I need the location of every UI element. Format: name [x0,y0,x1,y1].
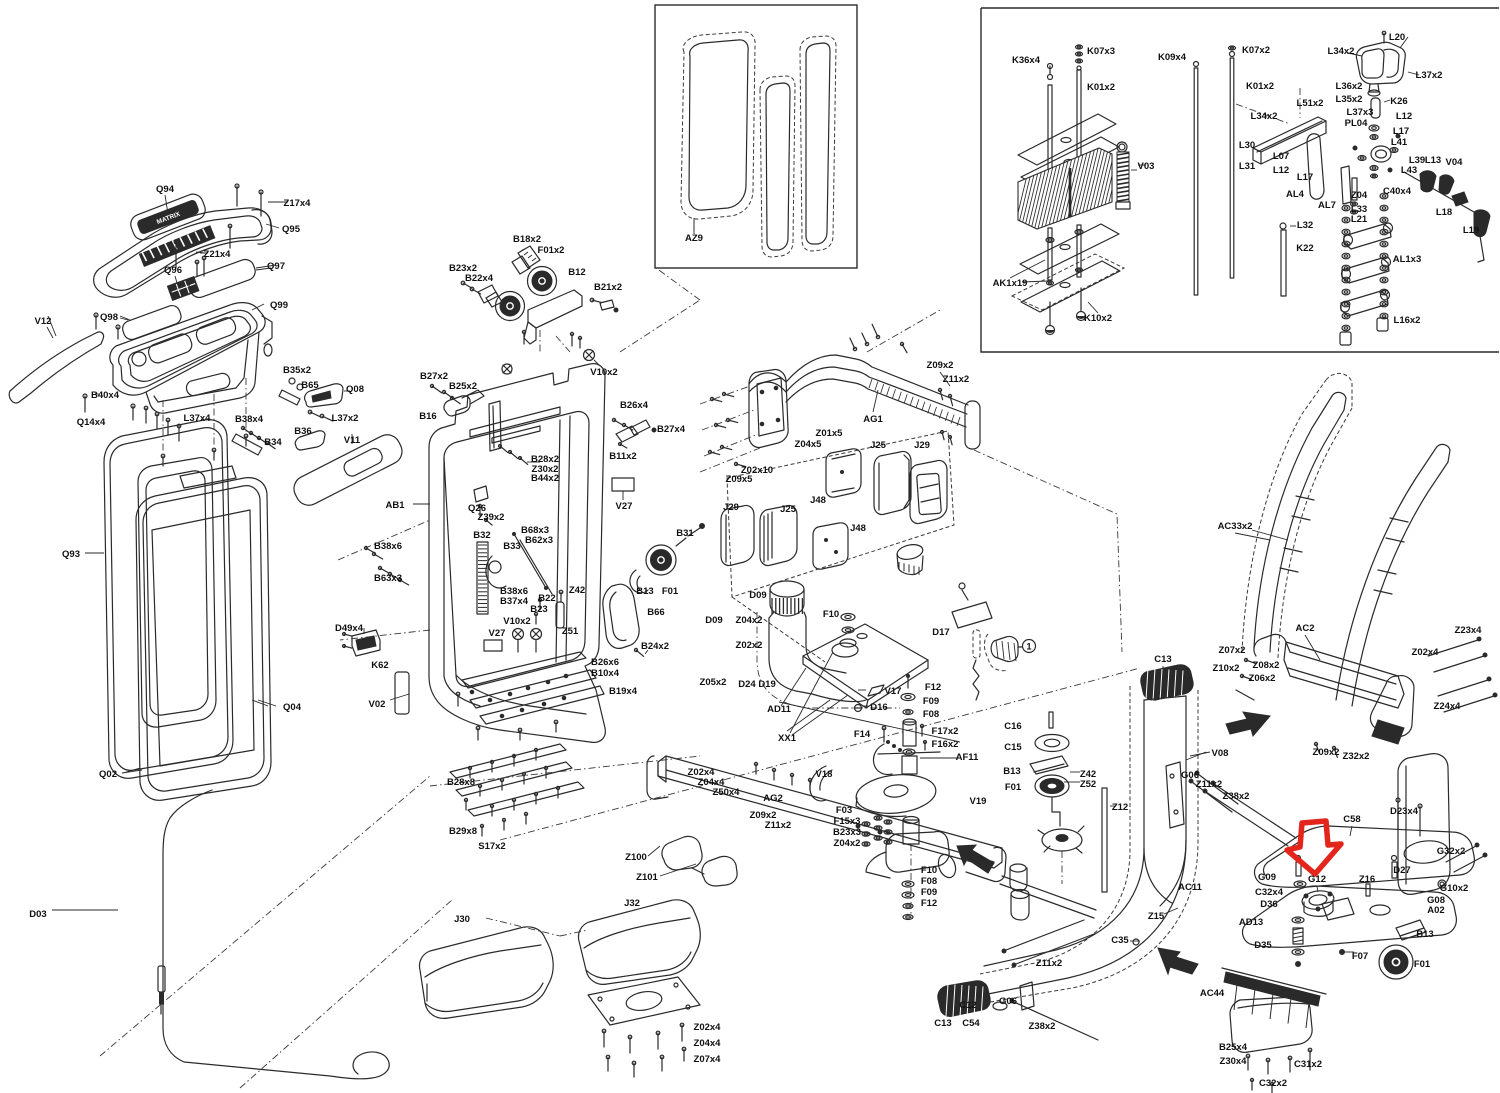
svg-text:C16: C16 [1004,721,1021,732]
svg-text:Z04: Z04 [1351,190,1368,201]
svg-text:Z11x2: Z11x2 [1196,779,1222,790]
svg-text:C54: C54 [962,1018,980,1029]
svg-text:B19x4: B19x4 [609,686,638,697]
svg-text:F07: F07 [1352,951,1368,962]
svg-text:F01: F01 [1414,959,1431,970]
svg-text:D35: D35 [1254,940,1272,951]
svg-text:L43: L43 [1401,165,1417,176]
svg-text:F12: F12 [921,898,937,909]
svg-text:D17: D17 [932,627,949,638]
svg-text:K07x2: K07x2 [1242,45,1270,56]
svg-text:XX1: XX1 [778,733,797,744]
svg-text:L17: L17 [1297,172,1313,183]
svg-text:K09x4: K09x4 [1158,52,1187,63]
svg-text:Z09x2: Z09x2 [927,360,954,371]
svg-text:Z02x4: Z02x4 [694,1022,722,1033]
svg-text:B12: B12 [568,267,585,278]
svg-text:Z17x4: Z17x4 [284,198,312,209]
svg-text:J48: J48 [850,523,866,534]
svg-text:Z38x2: Z38x2 [1223,791,1250,802]
svg-text:Z23x4: Z23x4 [1455,625,1483,636]
svg-text:B13: B13 [1003,766,1020,777]
svg-text:V10x2: V10x2 [503,616,530,627]
svg-text:B34: B34 [264,437,282,448]
svg-text:L12: L12 [1396,111,1412,122]
svg-text:L36x2: L36x2 [1336,81,1363,92]
svg-text:AD13: AD13 [1239,917,1263,928]
svg-text:L13: L13 [1425,155,1441,166]
svg-text:B38x4: B38x4 [235,414,264,425]
svg-text:Z11x2: Z11x2 [1036,958,1062,969]
svg-text:F09: F09 [921,887,937,898]
svg-text:F01x2: F01x2 [538,245,565,256]
svg-text:Z16: Z16 [1359,874,1375,885]
svg-text:C40x4: C40x4 [1383,186,1412,197]
svg-text:J25: J25 [780,504,797,515]
svg-text:Q94: Q94 [156,184,175,195]
svg-text:PL04: PL04 [1345,118,1368,129]
svg-text:A02: A02 [1427,905,1444,916]
svg-text:D09: D09 [705,615,722,626]
svg-text:D03: D03 [29,909,46,920]
svg-text:D27: D27 [1393,865,1410,876]
svg-text:V27: V27 [616,501,633,512]
svg-text:Z07x4: Z07x4 [694,1054,722,1065]
svg-text:F03: F03 [836,805,852,816]
svg-text:AB1: AB1 [385,500,405,511]
svg-text:F17x2: F17x2 [932,726,959,737]
svg-text:AC2: AC2 [1295,623,1314,634]
svg-text:B26x6: B26x6 [591,657,619,668]
svg-text:G09: G09 [1258,872,1276,883]
svg-text:B26x4: B26x4 [620,400,649,411]
svg-text:B44x2: B44x2 [531,473,559,484]
svg-text:B27x4: B27x4 [657,424,686,435]
svg-text:V04: V04 [1446,157,1464,168]
svg-text:L20: L20 [1389,32,1405,43]
svg-text:AK1x19: AK1x19 [993,278,1028,289]
svg-text:B23: B23 [530,604,547,615]
svg-text:L37x4: L37x4 [184,413,212,424]
svg-text:Z01x5: Z01x5 [816,428,844,439]
svg-text:Z42: Z42 [569,585,585,596]
svg-text:Z38x2: Z38x2 [1029,1021,1056,1032]
svg-text:Z11x2: Z11x2 [943,374,969,385]
svg-text:Z12: Z12 [1112,802,1128,813]
svg-text:L51x2: L51x2 [1297,98,1324,109]
svg-text:J29: J29 [723,502,739,513]
svg-text:L16x2: L16x2 [1394,315,1421,326]
svg-text:K36x4: K36x4 [1012,55,1041,66]
svg-text:C15: C15 [1004,742,1022,753]
svg-text:D09: D09 [749,590,766,601]
svg-text:Z30x4: Z30x4 [1220,1056,1248,1067]
svg-text:C31x2: C31x2 [1294,1059,1322,1070]
svg-text:F09: F09 [923,696,939,707]
svg-text:V18: V18 [816,769,833,780]
svg-text:Q04: Q04 [283,702,302,713]
svg-text:B11x2: B11x2 [609,451,636,462]
svg-text:L17: L17 [1393,126,1409,137]
svg-text:G32x2: G32x2 [1437,846,1466,857]
svg-text:C12: C12 [959,1000,976,1011]
svg-text:B13: B13 [636,586,653,597]
svg-text:Z50x4: Z50x4 [713,787,741,798]
svg-text:1: 1 [1026,642,1031,652]
svg-text:B28x8: B28x8 [447,777,475,788]
svg-text:Z04x4: Z04x4 [694,1038,722,1049]
svg-text:J32: J32 [624,898,640,909]
svg-text:L37x2: L37x2 [1416,70,1443,81]
svg-text:B22: B22 [538,593,555,604]
svg-text:B21x2: B21x2 [594,282,622,293]
svg-text:B32: B32 [473,530,490,541]
svg-text:B63x3: B63x3 [374,573,402,584]
svg-text:Q95: Q95 [282,224,301,235]
svg-text:G06: G06 [999,996,1017,1007]
svg-text:V03: V03 [1138,161,1155,172]
svg-text:J48: J48 [810,495,826,506]
svg-text:L41: L41 [1391,137,1408,148]
svg-text:B37x4: B37x4 [500,596,529,607]
svg-text:B10x4: B10x4 [591,668,620,679]
svg-text:S17x2: S17x2 [478,841,505,852]
svg-text:V11: V11 [344,435,361,446]
svg-text:B25x2: B25x2 [449,381,477,392]
svg-text:Z02x2: Z02x2 [736,640,763,651]
svg-text:Z08x2: Z08x2 [1253,660,1280,671]
svg-text:L34x2: L34x2 [1328,46,1355,57]
svg-text:Q97: Q97 [267,261,285,272]
svg-text:Z39x2: Z39x2 [478,512,505,523]
svg-text:Q93: Q93 [62,549,80,560]
svg-text:L31: L31 [1239,161,1256,172]
svg-text:F12: F12 [925,682,941,693]
svg-text:J25: J25 [870,440,887,451]
svg-text:Z05x2: Z05x2 [700,677,727,688]
svg-text:F01: F01 [1005,782,1022,793]
svg-text:V19: V19 [970,796,987,807]
svg-text:Z09x2: Z09x2 [1313,747,1340,758]
svg-text:C32x4: C32x4 [1255,887,1284,898]
svg-text:F01: F01 [662,586,679,597]
svg-text:C32x2: C32x2 [1259,1078,1287,1089]
svg-text:V08: V08 [1212,748,1229,759]
svg-text:K07x3: K07x3 [1087,46,1115,57]
svg-text:Z15: Z15 [1148,911,1165,922]
svg-text:Z32x2: Z32x2 [1343,751,1370,762]
svg-text:L30: L30 [1239,140,1255,151]
svg-text:B18x2: B18x2 [513,234,541,245]
svg-text:D24 D19: D24 D19 [738,679,776,690]
svg-text:D49x4: D49x4 [335,623,364,634]
svg-text:L07: L07 [1273,151,1289,162]
svg-text:D36: D36 [1260,899,1277,910]
svg-text:L18: L18 [1436,207,1452,218]
svg-text:B31: B31 [676,528,694,539]
svg-text:AL7: AL7 [1318,200,1336,211]
svg-text:Z07x2: Z07x2 [1219,645,1246,656]
svg-text:V10x2: V10x2 [590,367,617,378]
svg-text:AL4: AL4 [1286,189,1305,200]
svg-text:B62x3: B62x3 [525,535,553,546]
svg-text:D23x4: D23x4 [1390,806,1419,817]
svg-text:F15x3: F15x3 [834,816,861,827]
svg-text:Z24x4: Z24x4 [1434,701,1462,712]
svg-text:L35x2: L35x2 [1336,94,1363,105]
svg-text:AG2: AG2 [763,793,783,804]
svg-text:B13: B13 [1416,929,1433,940]
svg-text:AC33x2: AC33x2 [1218,521,1253,532]
svg-text:AF11: AF11 [956,752,979,763]
svg-text:K26: K26 [1390,96,1407,107]
svg-text:F10: F10 [921,865,937,876]
svg-text:Q14x4: Q14x4 [77,417,106,428]
svg-text:L32: L32 [1297,220,1313,231]
svg-text:Q99: Q99 [270,300,288,311]
svg-text:Z06x2: Z06x2 [1249,673,1276,684]
svg-text:J30: J30 [454,914,470,925]
svg-text:B23x3: B23x3 [833,827,861,838]
svg-text:L37x2: L37x2 [332,413,359,424]
svg-text:L19: L19 [1463,225,1479,236]
svg-text:C35: C35 [1111,935,1129,946]
svg-text:L21: L21 [1351,214,1368,225]
svg-text:L12: L12 [1273,165,1289,176]
svg-text:C58: C58 [1343,814,1360,825]
svg-text:Z101: Z101 [636,872,658,883]
svg-text:C13: C13 [1154,654,1171,665]
svg-text:V27: V27 [489,628,506,639]
svg-text:Q98: Q98 [100,312,118,323]
svg-text:F10: F10 [823,609,839,620]
svg-text:Z52: Z52 [1080,779,1096,790]
svg-text:AD11: AD11 [767,704,791,715]
svg-text:B65: B65 [301,380,319,391]
svg-text:K01x2: K01x2 [1087,82,1115,93]
svg-text:B22x4: B22x4 [465,273,494,284]
svg-text:AG1: AG1 [863,414,883,425]
svg-text:K62: K62 [371,660,388,671]
svg-text:B33: B33 [503,541,520,552]
svg-text:V17: V17 [885,686,902,697]
svg-text:B24x2: B24x2 [641,641,669,652]
svg-text:J29: J29 [914,440,930,451]
svg-text:Z04x2: Z04x2 [736,615,763,626]
svg-text:B40x4: B40x4 [91,390,120,401]
svg-text:D16: D16 [870,702,887,713]
svg-text:C13: C13 [934,1018,951,1029]
svg-text:F08: F08 [923,709,939,720]
svg-text:B25x4: B25x4 [1219,1042,1248,1053]
svg-text:Z04x2: Z04x2 [834,838,861,849]
svg-text:Z100: Z100 [625,852,647,863]
svg-text:AC11: AC11 [1178,882,1202,893]
svg-text:AC44: AC44 [1200,988,1225,999]
svg-text:F14: F14 [854,729,871,740]
svg-text:V02: V02 [369,699,386,710]
svg-text:B36: B36 [294,426,311,437]
svg-text:L34x2: L34x2 [1251,111,1278,122]
svg-text:B29x8: B29x8 [449,826,477,837]
svg-text:Z21x4: Z21x4 [204,249,232,260]
svg-text:B66: B66 [647,607,664,618]
svg-text:F08: F08 [921,876,937,887]
svg-text:Q08: Q08 [346,384,364,395]
svg-text:Z09x5: Z09x5 [726,474,754,485]
svg-text:Z02x4: Z02x4 [1412,647,1440,658]
svg-text:B35x2: B35x2 [283,365,311,376]
svg-text:G12: G12 [1308,874,1326,885]
svg-text:B16: B16 [419,411,436,422]
svg-text:Z10x2: Z10x2 [1213,663,1240,674]
svg-text:Q96: Q96 [164,265,182,276]
svg-text:L37x3: L37x3 [1347,107,1374,118]
svg-text:AL1x3: AL1x3 [1393,254,1422,265]
svg-text:Z04x5: Z04x5 [795,439,823,450]
svg-text:K01x2: K01x2 [1246,81,1274,92]
svg-text:K10x2: K10x2 [1084,313,1112,324]
svg-text:B27x2: B27x2 [420,371,448,382]
svg-text:G10x2: G10x2 [1440,883,1469,894]
svg-text:Z11x2: Z11x2 [765,820,791,831]
svg-text:AZ9: AZ9 [685,233,703,244]
svg-text:Z51: Z51 [562,626,579,637]
svg-text:Q02: Q02 [99,769,117,780]
svg-text:K22: K22 [1296,243,1313,254]
